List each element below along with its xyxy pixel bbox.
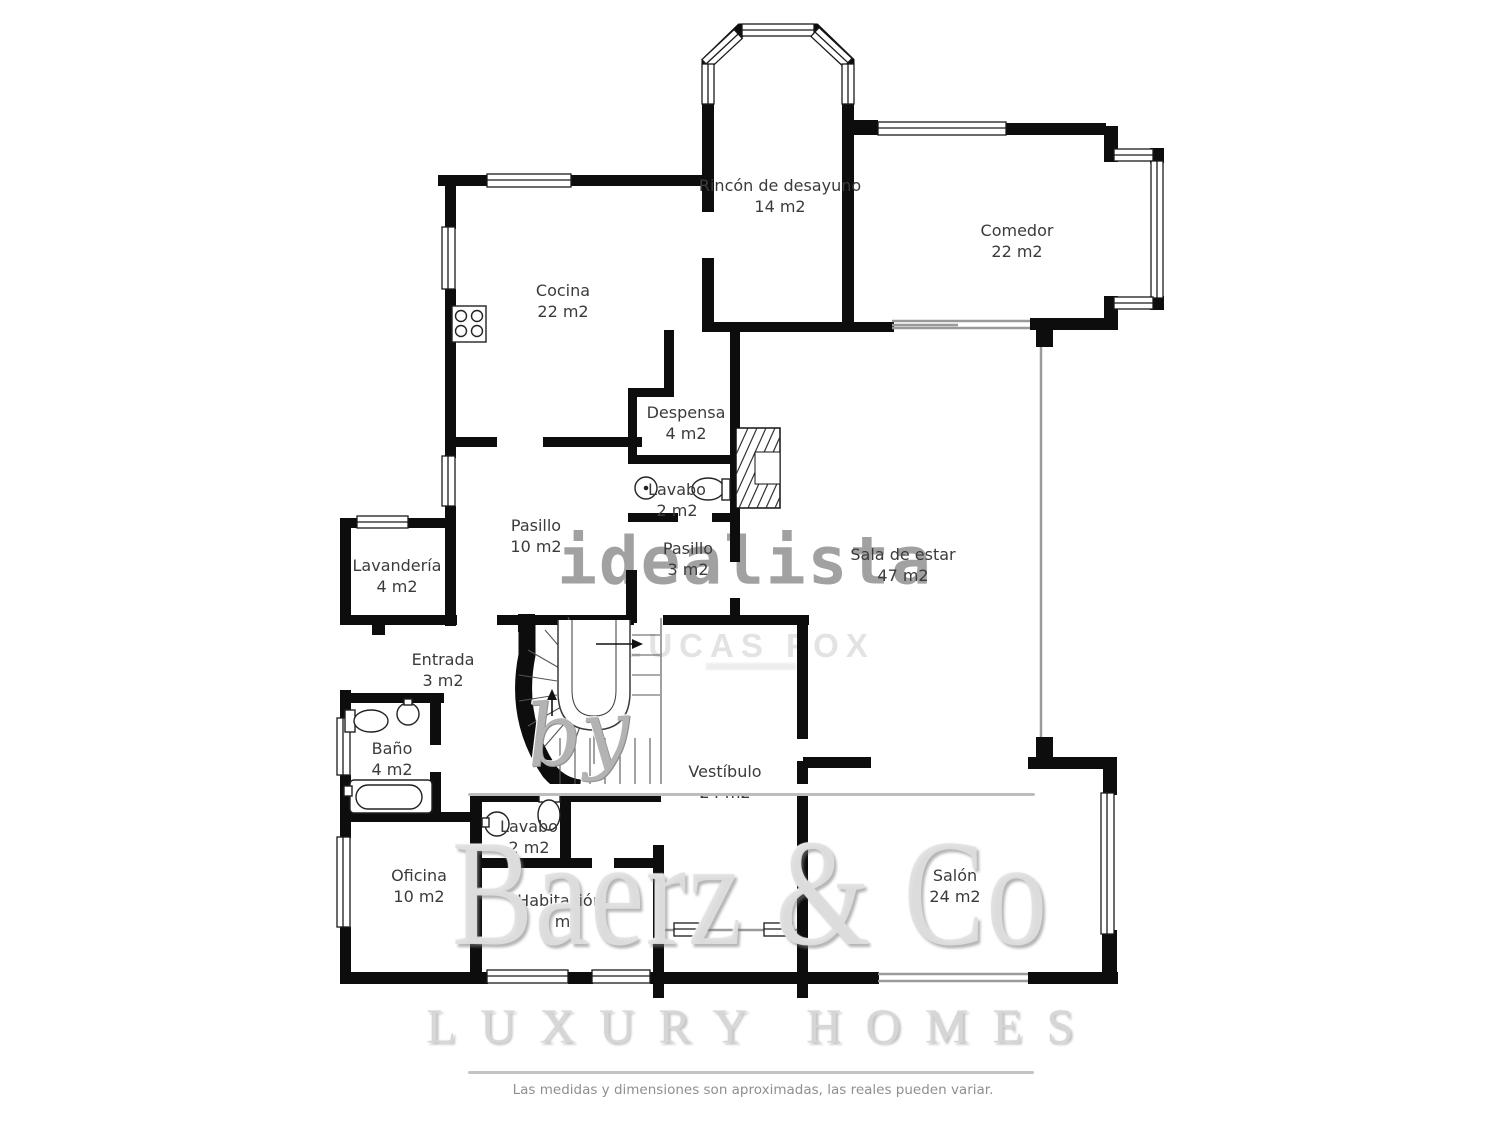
luxury-homes-watermark: LUXURY HOMES — [426, 998, 1097, 1055]
watermark-divider-line — [468, 1071, 1034, 1074]
room-label-sala-de-estar: Sala de estar47 m2 — [850, 544, 955, 586]
toilet-icon-bathroom — [345, 710, 388, 732]
baerz-co-watermark: Baerz & Co — [452, 806, 1049, 980]
room-label-pasillo-10: Pasillo10 m2 — [510, 515, 561, 557]
by-script-watermark: by — [523, 681, 633, 788]
room-label-cocina: Cocina22 m2 — [536, 280, 590, 322]
room-label-despensa: Despensa4 m2 — [647, 402, 726, 444]
room-label-lavanderia: Lavandería4 m2 — [353, 555, 442, 597]
room-label-bano: Baño4 m2 — [371, 738, 412, 780]
bathtub-icon — [344, 780, 432, 813]
room-label-entrada: Entrada3 m2 — [412, 649, 475, 691]
measurements-disclaimer: Las medidas y dimensiones son aproximada… — [513, 1082, 994, 1098]
stove-icon — [452, 306, 486, 342]
room-label-vestibulo: Vestíbulo24 m2 — [688, 761, 761, 803]
room-label-comedor: Comedor22 m2 — [981, 220, 1054, 262]
room-label-rincon-desayuno: Rincón de desayuno14 m2 — [699, 175, 861, 217]
room-label-lavabo-superior: Lavabo2 m2 — [648, 479, 706, 521]
floor-plan-page: idealista LUCAS FOX — [0, 0, 1500, 1125]
room-label-pasillo-3: Pasillo3 m2 — [663, 538, 713, 580]
room-label-oficina: Oficina10 m2 — [391, 865, 447, 907]
